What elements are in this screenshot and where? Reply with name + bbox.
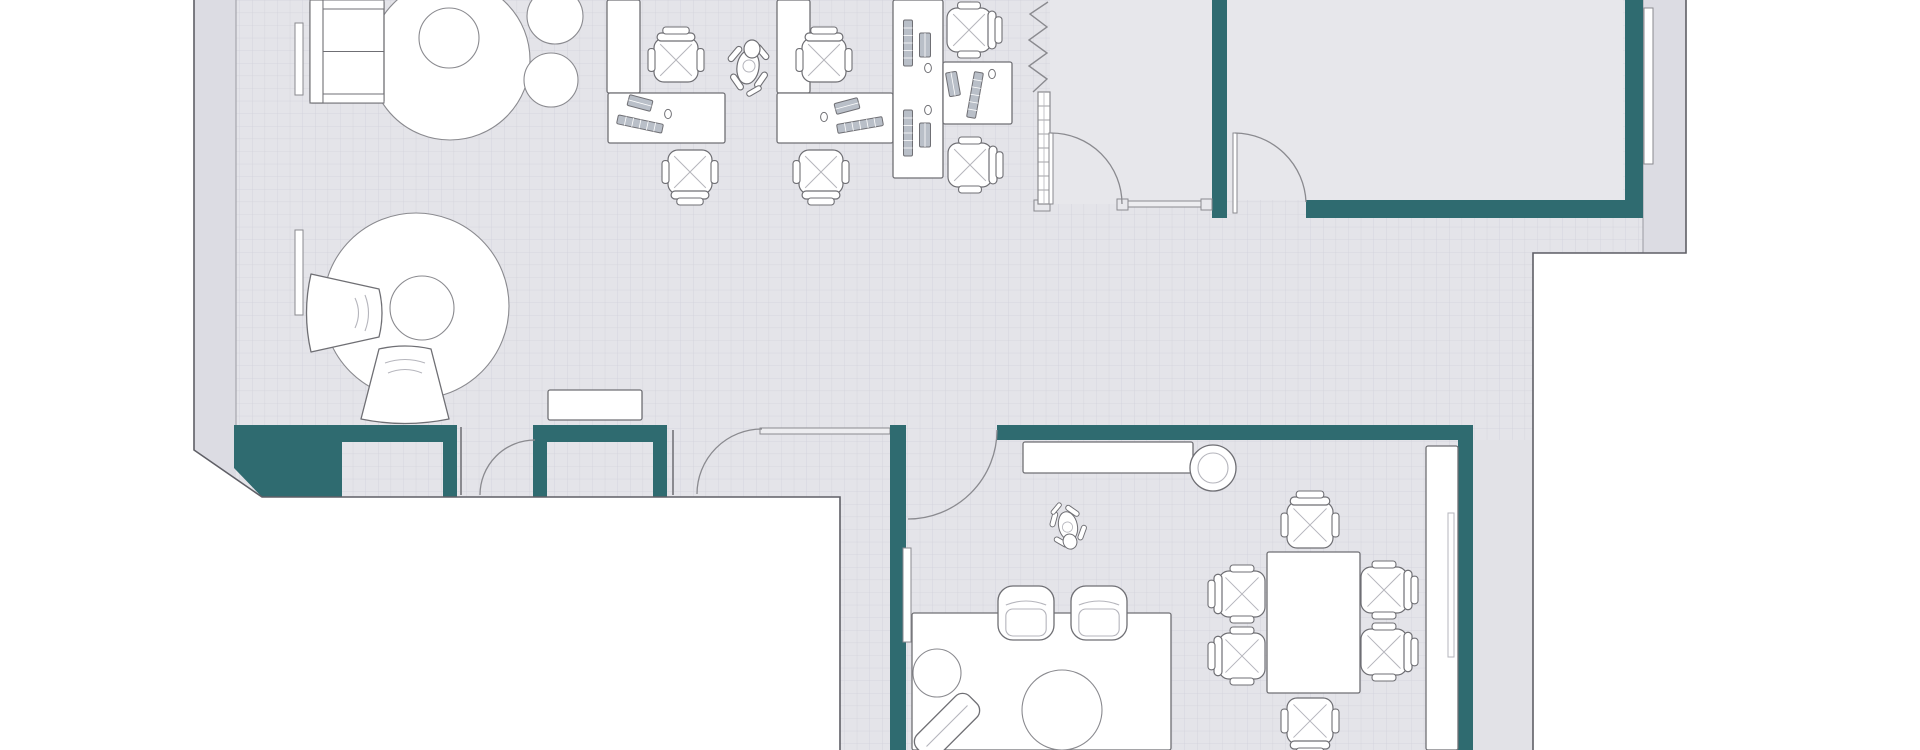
sofa[interactable] — [310, 0, 384, 103]
mouse-icon — [989, 69, 996, 78]
round-table[interactable] — [390, 276, 454, 340]
chair-armrest — [1230, 565, 1254, 572]
mouse-icon — [925, 63, 932, 72]
chair-headrest — [663, 27, 689, 34]
chair-armrest — [959, 137, 982, 144]
mouse-body — [665, 109, 672, 118]
chair-armrest — [842, 161, 849, 184]
chair-armrest — [1230, 616, 1254, 623]
chair-headrest — [995, 17, 1002, 43]
chair-armrest — [1332, 709, 1339, 733]
keyboard-icon — [920, 123, 931, 147]
chair-armrest — [958, 2, 981, 9]
mouse-body — [821, 112, 828, 121]
keyboard-icon — [920, 33, 931, 57]
meeting-table[interactable] — [1267, 552, 1360, 693]
stool-inner — [1198, 453, 1228, 483]
chair-armrest — [711, 161, 718, 184]
door-leaf — [1233, 133, 1237, 213]
chair-armrest — [1372, 674, 1396, 681]
mouse-icon — [665, 109, 672, 118]
chair-headrest — [1411, 638, 1418, 666]
ottoman[interactable] — [524, 53, 578, 107]
chair-headrest — [808, 198, 834, 205]
side-table[interactable] — [913, 649, 961, 697]
chair-headrest — [677, 198, 703, 205]
chair-headrest — [1411, 576, 1418, 604]
radiator — [295, 23, 303, 95]
desk[interactable] — [893, 0, 943, 178]
sofa-armrest — [323, 94, 384, 103]
floor-plan-canvas[interactable] — [0, 0, 1920, 750]
wall-meeting-east[interactable] — [1458, 425, 1473, 750]
chair-headrest — [1208, 642, 1215, 670]
glass-wall — [1127, 201, 1202, 207]
monitor-icon — [904, 110, 913, 156]
wall-segment — [760, 428, 890, 434]
chair-armrest — [1372, 612, 1396, 619]
chair-headrest — [996, 152, 1003, 178]
chair-headrest — [811, 27, 837, 34]
chair-armrest — [959, 186, 982, 193]
sofa-back — [310, 0, 323, 103]
sofa-armrest — [323, 0, 384, 9]
kitchen-counter[interactable] — [1023, 442, 1193, 473]
console-table[interactable] — [548, 390, 642, 420]
chair-armrest — [1332, 513, 1339, 537]
chair-headrest — [1208, 580, 1215, 608]
wall-south-left[interactable] — [234, 425, 457, 442]
wall-south-leg[interactable] — [533, 442, 547, 497]
chair-armrest — [796, 49, 803, 72]
wall-room-b-south[interactable] — [1306, 200, 1643, 218]
sliding-door[interactable] — [903, 548, 911, 642]
chair-armrest — [1281, 709, 1288, 733]
chair-armrest — [1230, 627, 1254, 634]
wall-room-divider[interactable] — [1212, 0, 1227, 218]
round-table[interactable] — [1022, 670, 1102, 750]
chair-armrest — [1281, 513, 1288, 537]
stool[interactable] — [1190, 445, 1236, 491]
radiator — [1644, 8, 1653, 164]
mouse-body — [925, 105, 932, 114]
room-floor — [1227, 0, 1623, 200]
chair-armrest — [845, 49, 852, 72]
armchair[interactable] — [1071, 586, 1127, 640]
monitor-icon — [904, 20, 913, 66]
chair-armrest — [697, 49, 704, 72]
mouse-body — [989, 69, 996, 78]
armchair[interactable] — [998, 586, 1054, 640]
chair-armrest — [662, 161, 669, 184]
chair-headrest — [1296, 491, 1324, 498]
wall-south-leg[interactable] — [653, 442, 667, 497]
mouse-body — [925, 63, 932, 72]
chair-armrest — [1372, 561, 1396, 568]
chair-armrest — [1372, 623, 1396, 630]
wall-meeting-north[interactable] — [997, 425, 1470, 440]
round-table[interactable] — [419, 8, 479, 68]
chair-armrest — [793, 161, 800, 184]
desk-return[interactable] — [607, 0, 640, 93]
wall-south-leg[interactable] — [443, 442, 457, 497]
dog-head — [744, 40, 760, 58]
floor-plan-viewport — [0, 0, 1920, 750]
room-floor — [1050, 0, 1212, 204]
mouse-icon — [925, 105, 932, 114]
mouse-icon — [821, 112, 828, 121]
chair-armrest — [1230, 678, 1254, 685]
wall-cabinet[interactable] — [1426, 446, 1458, 750]
exterior-strip — [1473, 440, 1533, 750]
radiator — [295, 230, 303, 315]
wall-room-b-east[interactable] — [1625, 0, 1643, 218]
chair-armrest — [648, 49, 655, 72]
wall-south-mid[interactable] — [533, 425, 667, 442]
exterior-wall-band — [194, 0, 236, 497]
door-leaf — [1049, 133, 1053, 204]
door-frame-post — [1201, 199, 1212, 210]
chair-armrest — [958, 51, 981, 58]
